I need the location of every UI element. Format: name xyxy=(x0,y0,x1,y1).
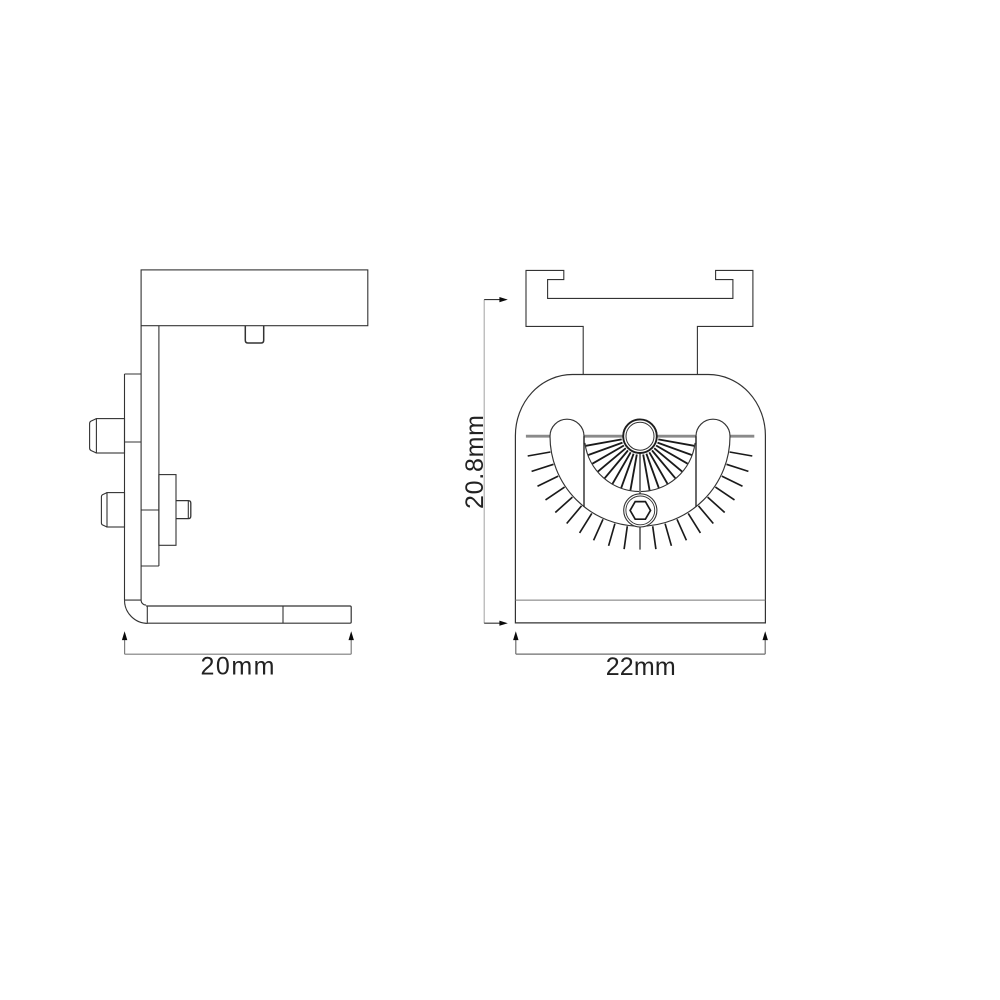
svg-text:22mm: 22mm xyxy=(606,653,676,681)
svg-text:20mm: 20mm xyxy=(201,653,275,681)
svg-text:20.8mm: 20.8mm xyxy=(461,415,489,509)
